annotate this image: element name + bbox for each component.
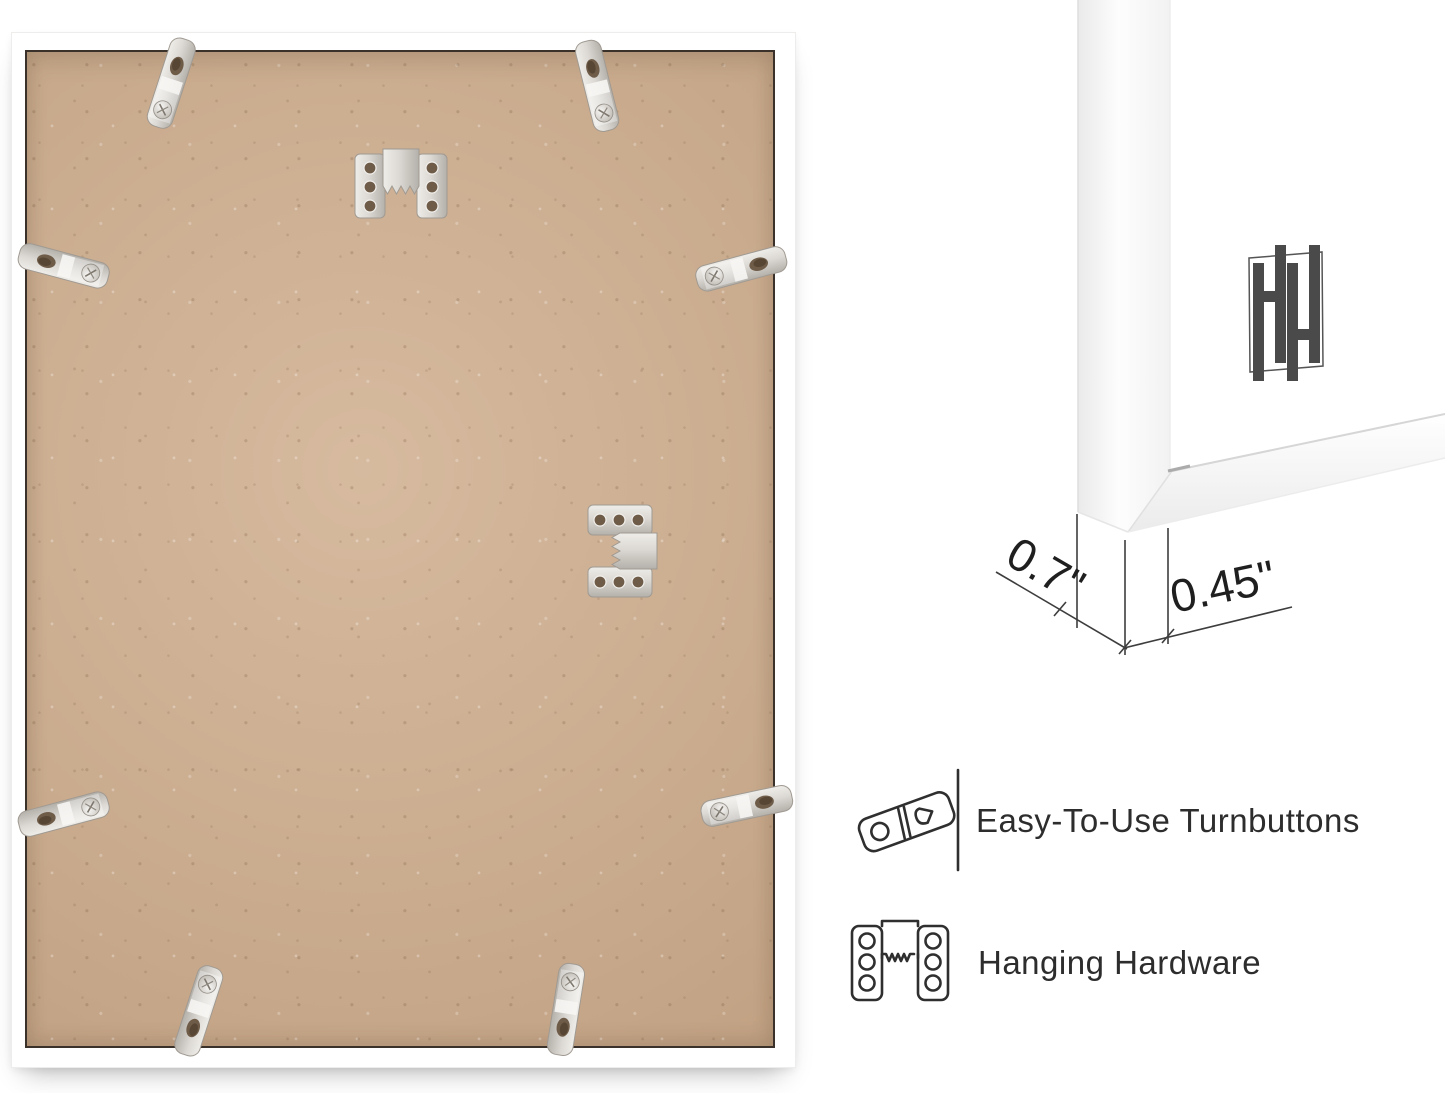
hanging-hardware-icon (850, 918, 950, 1004)
turnbutton (693, 244, 789, 293)
turnbutton (573, 38, 620, 134)
hardware-overlay (12, 33, 795, 1067)
turnbutton (172, 963, 225, 1059)
turnbutton (699, 784, 794, 829)
frame-back-photo (12, 33, 795, 1067)
closeup-frame-side-face (1078, 0, 1170, 532)
turnbutton-icon (850, 764, 968, 876)
feature-label: Hanging Hardware (978, 944, 1261, 982)
turnbutton (16, 241, 112, 290)
frame-corner-closeup: 0.7" 0.45" (970, 0, 1445, 700)
closeup-backing-board (1170, 0, 1445, 471)
dimension-depth-label: 0.7" (998, 527, 1094, 612)
turnbutton (145, 35, 198, 131)
sawtooth-hanger (588, 505, 657, 597)
sawtooth-hanger (355, 149, 447, 218)
feature-row-turnbuttons: Easy-To-Use Turnbuttons (850, 764, 1410, 876)
product-infographic: 0.7" 0.45" Easy-To-Use Turnbuttons (0, 0, 1445, 1093)
dimension-face-width-label: 0.45" (1165, 550, 1279, 623)
feature-label: Easy-To-Use Turnbuttons (976, 802, 1360, 840)
feature-row-hanging-hardware: Hanging Hardware (850, 916, 1410, 1006)
turnbutton (16, 790, 112, 839)
brand-logo-hh (1249, 245, 1323, 381)
turnbutton (546, 962, 586, 1057)
